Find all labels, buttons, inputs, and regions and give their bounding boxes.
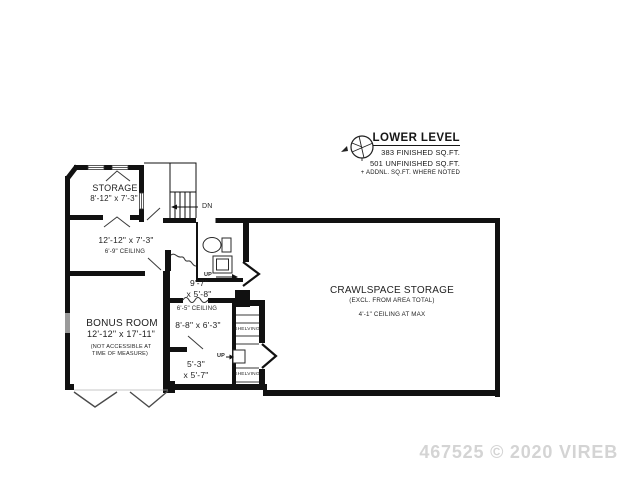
bonus-room-note-line1: (NOT ACCESSIBLE AT: [91, 344, 152, 350]
crawlspace-name: CRAWLSPACE STORAGE: [330, 285, 454, 296]
vireb-watermark: 467525 © 2020 VIREB: [419, 442, 618, 463]
toilet-icon: [203, 238, 231, 253]
crawlspace-note: (EXCL. FROM AREA TOTAL): [349, 298, 434, 305]
shelving-lower-label: SHELVING: [234, 372, 260, 377]
bonus-room-name: BONUS ROOM: [86, 318, 157, 329]
staircase: [144, 163, 198, 218]
up-arrow-step-box: [226, 350, 245, 363]
additional-area-note: + ADDNL. SQ.FT. WHERE NOTED: [361, 170, 460, 176]
stairs-down-label: DN: [202, 203, 213, 211]
floorplan-page: STORAGE 8'-12" x 7'-3" 12'-12" x 7'-3" 6…: [0, 0, 640, 480]
finished-area: 383 FINISHED SQ.FT.: [361, 148, 460, 157]
floorplan-drawing: [0, 0, 640, 480]
storage-room-name: STORAGE: [92, 184, 137, 194]
utility-room-dims: 12'-12" x 7'-3": [98, 236, 153, 245]
room-5-3-dims-line2: x 5'-7": [184, 371, 209, 380]
hall-dims-line2: x 5'-8": [187, 290, 212, 299]
room-5-3-dims-line1: 5'-3": [187, 360, 205, 369]
room-6-5-ceiling: 6'-5" CEILING: [177, 306, 217, 313]
page-title: LOWER LEVEL: [373, 132, 460, 146]
shelving-upper-label: SHELVING: [234, 327, 260, 332]
title-block: LOWER LEVEL 383 FINISHED SQ.FT. 501 UNFI…: [361, 128, 460, 176]
bonus-room-dims: 12'-12" x 17'-11": [87, 330, 155, 340]
unfinished-area: 501 UNFINISHED SQ.FT.: [361, 159, 460, 168]
storage-room-dims: 8'-12" x 7'-3": [90, 195, 138, 204]
patio-door-icons: [74, 390, 168, 407]
utility-room-ceiling: 6'-9" CEILING: [105, 249, 145, 256]
hall-dims-line1: 9'-7": [190, 279, 208, 288]
step-up-label: UP: [217, 353, 225, 359]
sink-icon: [213, 256, 232, 273]
bonus-room-window: [65, 313, 70, 333]
room-6-5-dims: 8'-8" x 6'-3": [175, 321, 220, 330]
bonus-room-note-line2: TIME OF MEASURE): [92, 351, 148, 357]
crawlspace-ceiling: 4'-1" CEILING AT MAX: [359, 312, 426, 319]
